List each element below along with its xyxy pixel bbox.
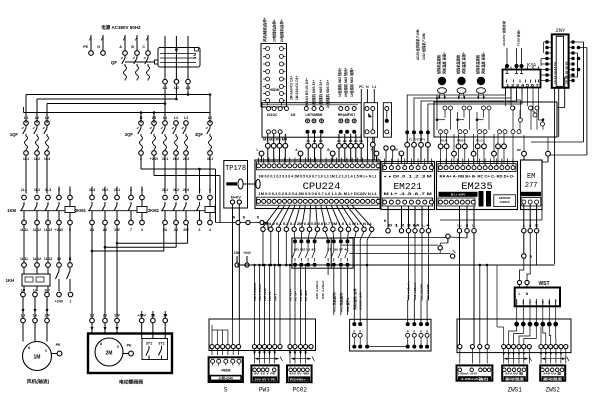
svg-text:2QF: 2QF — [125, 132, 134, 137]
svg-text:1#2# 给煤机 F10M: 1#2# 给煤机 F10M — [421, 33, 426, 60]
svg-text:F1 F2 F3 F4: F1 F2 F3 F4 — [409, 138, 425, 142]
svg-text:5: 5 — [542, 301, 544, 305]
svg-text:2M: 2M — [106, 351, 113, 357]
svg-text:2W: 2W — [114, 314, 120, 318]
svg-text:M L+ ♦24V: M L+ ♦24V — [451, 193, 466, 197]
svg-text:6: 6 — [548, 301, 550, 305]
svg-text:电源 AC380V 50HZ: 电源 AC380V 50HZ — [101, 24, 141, 31]
svg-text:ZWS1: ZWS1 — [507, 387, 522, 394]
svg-text:0V 1V Y PE: 0V 1V Y PE — [254, 372, 276, 376]
svg-text:给煤机温度检: 给煤机温度检 — [436, 54, 441, 74]
svg-text:L: L — [257, 148, 259, 152]
svg-text:PC 42V+: PC 42V+ — [289, 289, 293, 301]
svg-text:HSDM: HSDM — [270, 88, 280, 92]
svg-text:DP: DP — [517, 148, 521, 152]
svg-text:B: B — [529, 223, 531, 227]
svg-text:QF: QF — [111, 60, 118, 65]
svg-text:1M 0.0 0.1 0.2 0.3 0.4 2M 0.5: 1M 0.0 0.1 0.2 0.3 0.4 2M 0.5 0.6 0.7 1.… — [259, 174, 377, 178]
svg-text:S: S — [224, 387, 228, 394]
svg-text:1L3: 1L3 — [45, 188, 51, 192]
svg-text:1V: 1V — [33, 314, 38, 318]
svg-text:R: R — [353, 329, 355, 333]
svg-text:42V 0V 485: 42V 0V 485 — [289, 372, 310, 376]
svg-text:3QF: 3QF — [195, 132, 204, 137]
svg-text:2L2: 2L2 — [173, 188, 179, 192]
svg-text:1 2 3 4 5 6 7: 1 2 3 4 5 6 7 — [506, 83, 539, 87]
svg-text:TP178: TP178 — [225, 165, 246, 173]
svg-text:L: L — [518, 292, 520, 296]
svg-text:+24V: +24V — [55, 300, 64, 304]
svg-text:PC 0V-: PC 0V- — [294, 291, 298, 301]
svg-text:24V 0V 振: 24V 0V 振 — [505, 371, 524, 375]
svg-text:L2: L2 — [174, 116, 178, 120]
svg-text:AC220V 油泵启动: AC220V 油泵启动 — [501, 21, 506, 46]
svg-text:PE: PE — [127, 344, 132, 348]
svg-text:EM: EM — [527, 173, 535, 181]
svg-text:RB B+: RB B+ — [457, 138, 465, 142]
svg-text:PC: PC — [359, 85, 364, 89]
svg-text:24V 0V Y PE: 24V 0V Y PE — [255, 377, 276, 381]
svg-text:2#给煤机 M03 快闭+: 2#给煤机 M03 快闭+ — [343, 68, 348, 97]
svg-text:1L2: 1L2 — [34, 188, 40, 192]
svg-text:4-20mA输出: 4-20mA输出 — [460, 376, 488, 381]
svg-text:PE: PE — [56, 343, 61, 347]
svg-text:RC C+: RC C+ — [476, 138, 484, 142]
svg-text:≯4&M: ≯4&M — [221, 369, 231, 373]
svg-text:PW 0V: PW 0V — [268, 292, 272, 301]
svg-text:1#给煤机 M03 33+: 1#给煤机 M03 33+ — [311, 80, 316, 108]
svg-text:K3A: K3A — [527, 63, 536, 69]
svg-text:0 1 2 3 M L+: 0 1 2 3 M L+ — [388, 224, 430, 228]
svg-text:M1 M2 5J 4C: M1 M2 5J 4C — [294, 247, 317, 251]
svg-text:PW 4-20mA-: PW 4-20mA- — [258, 283, 262, 301]
svg-text:1L1: 1L1 — [21, 188, 27, 192]
svg-text:给煤机温度检: 给煤机温度检 — [475, 54, 480, 74]
svg-text:公共+24V: 公共+24V — [218, 376, 234, 381]
svg-text:2L3: 2L3 — [183, 188, 189, 192]
svg-text:PW +24V: PW +24V — [263, 288, 267, 301]
svg-text:HRAMFIST: HRAMFIST — [338, 113, 356, 117]
svg-text:风机温度 高报+: 风机温度 高报+ — [481, 52, 486, 74]
svg-text:RA A+ A- RB B+ B- RC C+ C- RD: RA A+ A- RB B+ B- RC C+ C- RD D+ D- — [440, 174, 515, 178]
svg-text:3: 3 — [199, 188, 201, 192]
svg-text:A02 调节+: A02 调节+ — [345, 297, 350, 312]
svg-text:3: 3 — [529, 301, 531, 305]
svg-text:A01 风机调节-: A01 风机调节- — [338, 292, 343, 312]
svg-text:1W: 1W — [44, 314, 50, 318]
svg-text:风机(轴流): 风机(轴流) — [27, 378, 50, 385]
svg-text:F10M 启动+: F10M 启动+ — [516, 29, 521, 46]
svg-text:A: A — [119, 45, 122, 49]
svg-text:R: R — [420, 329, 422, 333]
svg-text:2#给煤机启停+: 2#给煤机启停+ — [279, 19, 284, 42]
svg-text:振动温度: 振动温度 — [543, 376, 562, 381]
svg-text:振动温度: 振动温度 — [505, 376, 524, 381]
svg-text:1#给煤机 M03 快闭+: 1#给煤机 M03 快闭+ — [337, 68, 342, 97]
svg-text:PC RS485+: PC RS485+ — [420, 282, 424, 299]
svg-text:R: R — [407, 329, 409, 333]
svg-text:R: R — [413, 329, 415, 333]
svg-text:1M 0.0 0.1 0.2 0.3 0.4 2M 0.5: 1M 0.0 0.1 0.2 0.3 0.4 2M 0.5 0.6 0.7 1.… — [259, 192, 377, 196]
svg-text:+24V: +24V — [243, 251, 251, 255]
svg-text:XXC 4-20mA: XXC 4-20mA — [321, 280, 325, 299]
svg-text:A5XXX +24V: A5XXX +24V — [359, 291, 363, 310]
svg-text:R: R — [426, 329, 428, 333]
svg-text:PE: PE — [535, 223, 539, 227]
svg-text:风机温度 高报+: 风机温度 高报+ — [461, 52, 466, 74]
svg-text:M1 M2 M3 M4: M1 M2 M3 M4 — [263, 138, 287, 142]
svg-text:1A 2A 3A 4A 5A: 1A 2A 3A 4A 5A — [553, 61, 557, 84]
svg-text:1M: 1M — [34, 355, 41, 361]
svg-text:1M: 1M — [291, 113, 296, 117]
svg-text:L3: L3 — [184, 116, 188, 120]
svg-text:RA A+: RA A+ — [440, 138, 448, 142]
svg-text:1U: 1U — [21, 314, 26, 318]
svg-text:EEPROM: EEPROM — [499, 196, 510, 200]
svg-text:2U: 2U — [90, 314, 95, 318]
svg-text:风机温度 高报+: 风机温度 高报+ — [442, 52, 447, 74]
svg-text:2W: 2W — [183, 228, 189, 232]
svg-text:2M SA3=D1 D2+: 2M SA3=D1 D2+ — [289, 76, 293, 100]
svg-text:N: N — [97, 45, 100, 49]
svg-text:1: 1 — [516, 301, 518, 305]
svg-text:1S1DC: 1S1DC — [267, 113, 278, 117]
svg-text:PW Y: PW Y — [273, 293, 277, 301]
svg-text:1QF: 1QF — [10, 132, 19, 137]
svg-text:C: C — [142, 45, 145, 49]
svg-text:1L11: 1L11 — [20, 257, 28, 261]
svg-text:PC RS485-: PC RS485- — [426, 283, 430, 299]
svg-text:给煤机温度检: 给煤机温度检 — [456, 54, 461, 74]
svg-text:A01 风机调节+: A01 风机调节+ — [331, 291, 336, 312]
svg-text:2#给煤机 M03 33+: 2#给煤机 M03 33+ — [325, 80, 330, 108]
svg-text:1: 1 — [70, 300, 72, 304]
svg-text:A: A — [523, 223, 525, 227]
svg-text:1#给煤机启停+: 1#给煤机启停+ — [272, 19, 277, 42]
svg-text:2NY: 2NY — [556, 27, 567, 34]
svg-text:277: 277 — [525, 182, 538, 190]
svg-text:PC 4-20mA-: PC 4-20mA- — [413, 282, 417, 299]
svg-text:WST: WST — [538, 281, 549, 287]
svg-text:♦ ♦ DI .0 .1 .2 .3 M: ♦ ♦ DI .0 .1 .2 .3 M — [384, 174, 433, 178]
svg-text:1M SA2=D1 D2+: 1M SA2=D1 D2+ — [295, 76, 299, 100]
svg-text:PC 485+: PC 485+ — [299, 289, 303, 301]
svg-text:2KM2: 2KM2 — [148, 208, 160, 213]
svg-text:1#给煤机 M03 34+: 1#给煤机 M03 34+ — [318, 80, 323, 108]
svg-text:2: 2 — [209, 188, 211, 192]
svg-text:2L1: 2L1 — [162, 188, 168, 192]
svg-text:3: 3 — [141, 228, 143, 232]
svg-text:DI: DI — [395, 148, 398, 152]
svg-text:24V 0V 振: 24V 0V 振 — [543, 371, 562, 375]
svg-text:3T 1M 3T 4C: 3T 1M 3T 4C — [327, 247, 350, 251]
svg-text:PW 4-20mA+: PW 4-20mA+ — [253, 282, 257, 301]
svg-text:10M: 10M — [234, 251, 241, 255]
svg-text:L1: L1 — [372, 85, 376, 89]
svg-text:1L13: 1L13 — [44, 257, 52, 261]
svg-text:1M 0.0 0.1 0.2 0.3 2M 0.4 0.5: 1M 0.0 0.1 0.2 0.3 2M 0.4 0.5 0.6 0.7 3M… — [262, 222, 372, 226]
svg-text:RS485+ -: RS485+ - — [290, 377, 309, 381]
svg-text:1#给煤机 M03 故障+: 1#给煤机 M03 故障+ — [349, 68, 354, 97]
svg-text:7: 7 — [130, 228, 132, 232]
svg-text:3T1: 3T1 — [146, 342, 152, 346]
svg-text:电动蝶阀阀: 电动蝶阀阀 — [119, 379, 143, 386]
svg-text:PC 4-20mA+: PC 4-20mA+ — [407, 281, 411, 299]
svg-text:风机(轴流)启停+: 风机(轴流)启停+ — [262, 17, 267, 42]
svg-text:L1: L1 — [163, 116, 167, 120]
svg-text:2M 5A3 B7=21 D3+: 2M 5A3 B7=21 D3+ — [305, 78, 309, 108]
svg-text:2: 2 — [522, 301, 524, 305]
svg-text:CONFIG: CONFIG — [500, 200, 510, 204]
svg-text:PC02: PC02 — [293, 387, 308, 394]
svg-text:R: R — [359, 329, 361, 333]
svg-text:4-20mA +24V: 4-20mA +24V — [457, 371, 477, 375]
svg-text:LBTSMBM: LBTSMBM — [305, 113, 322, 117]
svg-text:1KH: 1KH — [6, 278, 14, 283]
svg-text:EM221: EM221 — [393, 181, 422, 192]
svg-text:4: 4 — [209, 228, 211, 232]
svg-text:AC/N 给排风机 F10M: AC/N 给排风机 F10M — [415, 29, 420, 60]
svg-text:ZWS2: ZWS2 — [545, 387, 560, 394]
svg-text:2KM1: 2KM1 — [75, 208, 87, 213]
svg-text:1L12: 1L12 — [33, 257, 41, 261]
svg-text:N+0V: N+0V — [231, 195, 241, 200]
svg-text:PC 485-: PC 485- — [304, 290, 308, 301]
svg-text:XXC 4-20mA: XXC 4-20mA — [315, 280, 319, 299]
svg-text:PE: PE — [83, 45, 88, 49]
svg-text:B: B — [131, 45, 134, 49]
svg-text:PW3: PW3 — [259, 387, 270, 394]
svg-text:4: 4 — [535, 301, 537, 305]
svg-text:2V: 2V — [103, 314, 108, 318]
svg-text:1KM: 1KM — [7, 208, 16, 213]
svg-text:M L+ .4 .5 .6 .7 M: M L+ .4 .5 .6 .7 M — [384, 192, 433, 196]
svg-text:3T2: 3T2 — [158, 342, 164, 346]
svg-text:6: 6 — [199, 228, 201, 232]
svg-text:7: 7 — [555, 301, 557, 305]
